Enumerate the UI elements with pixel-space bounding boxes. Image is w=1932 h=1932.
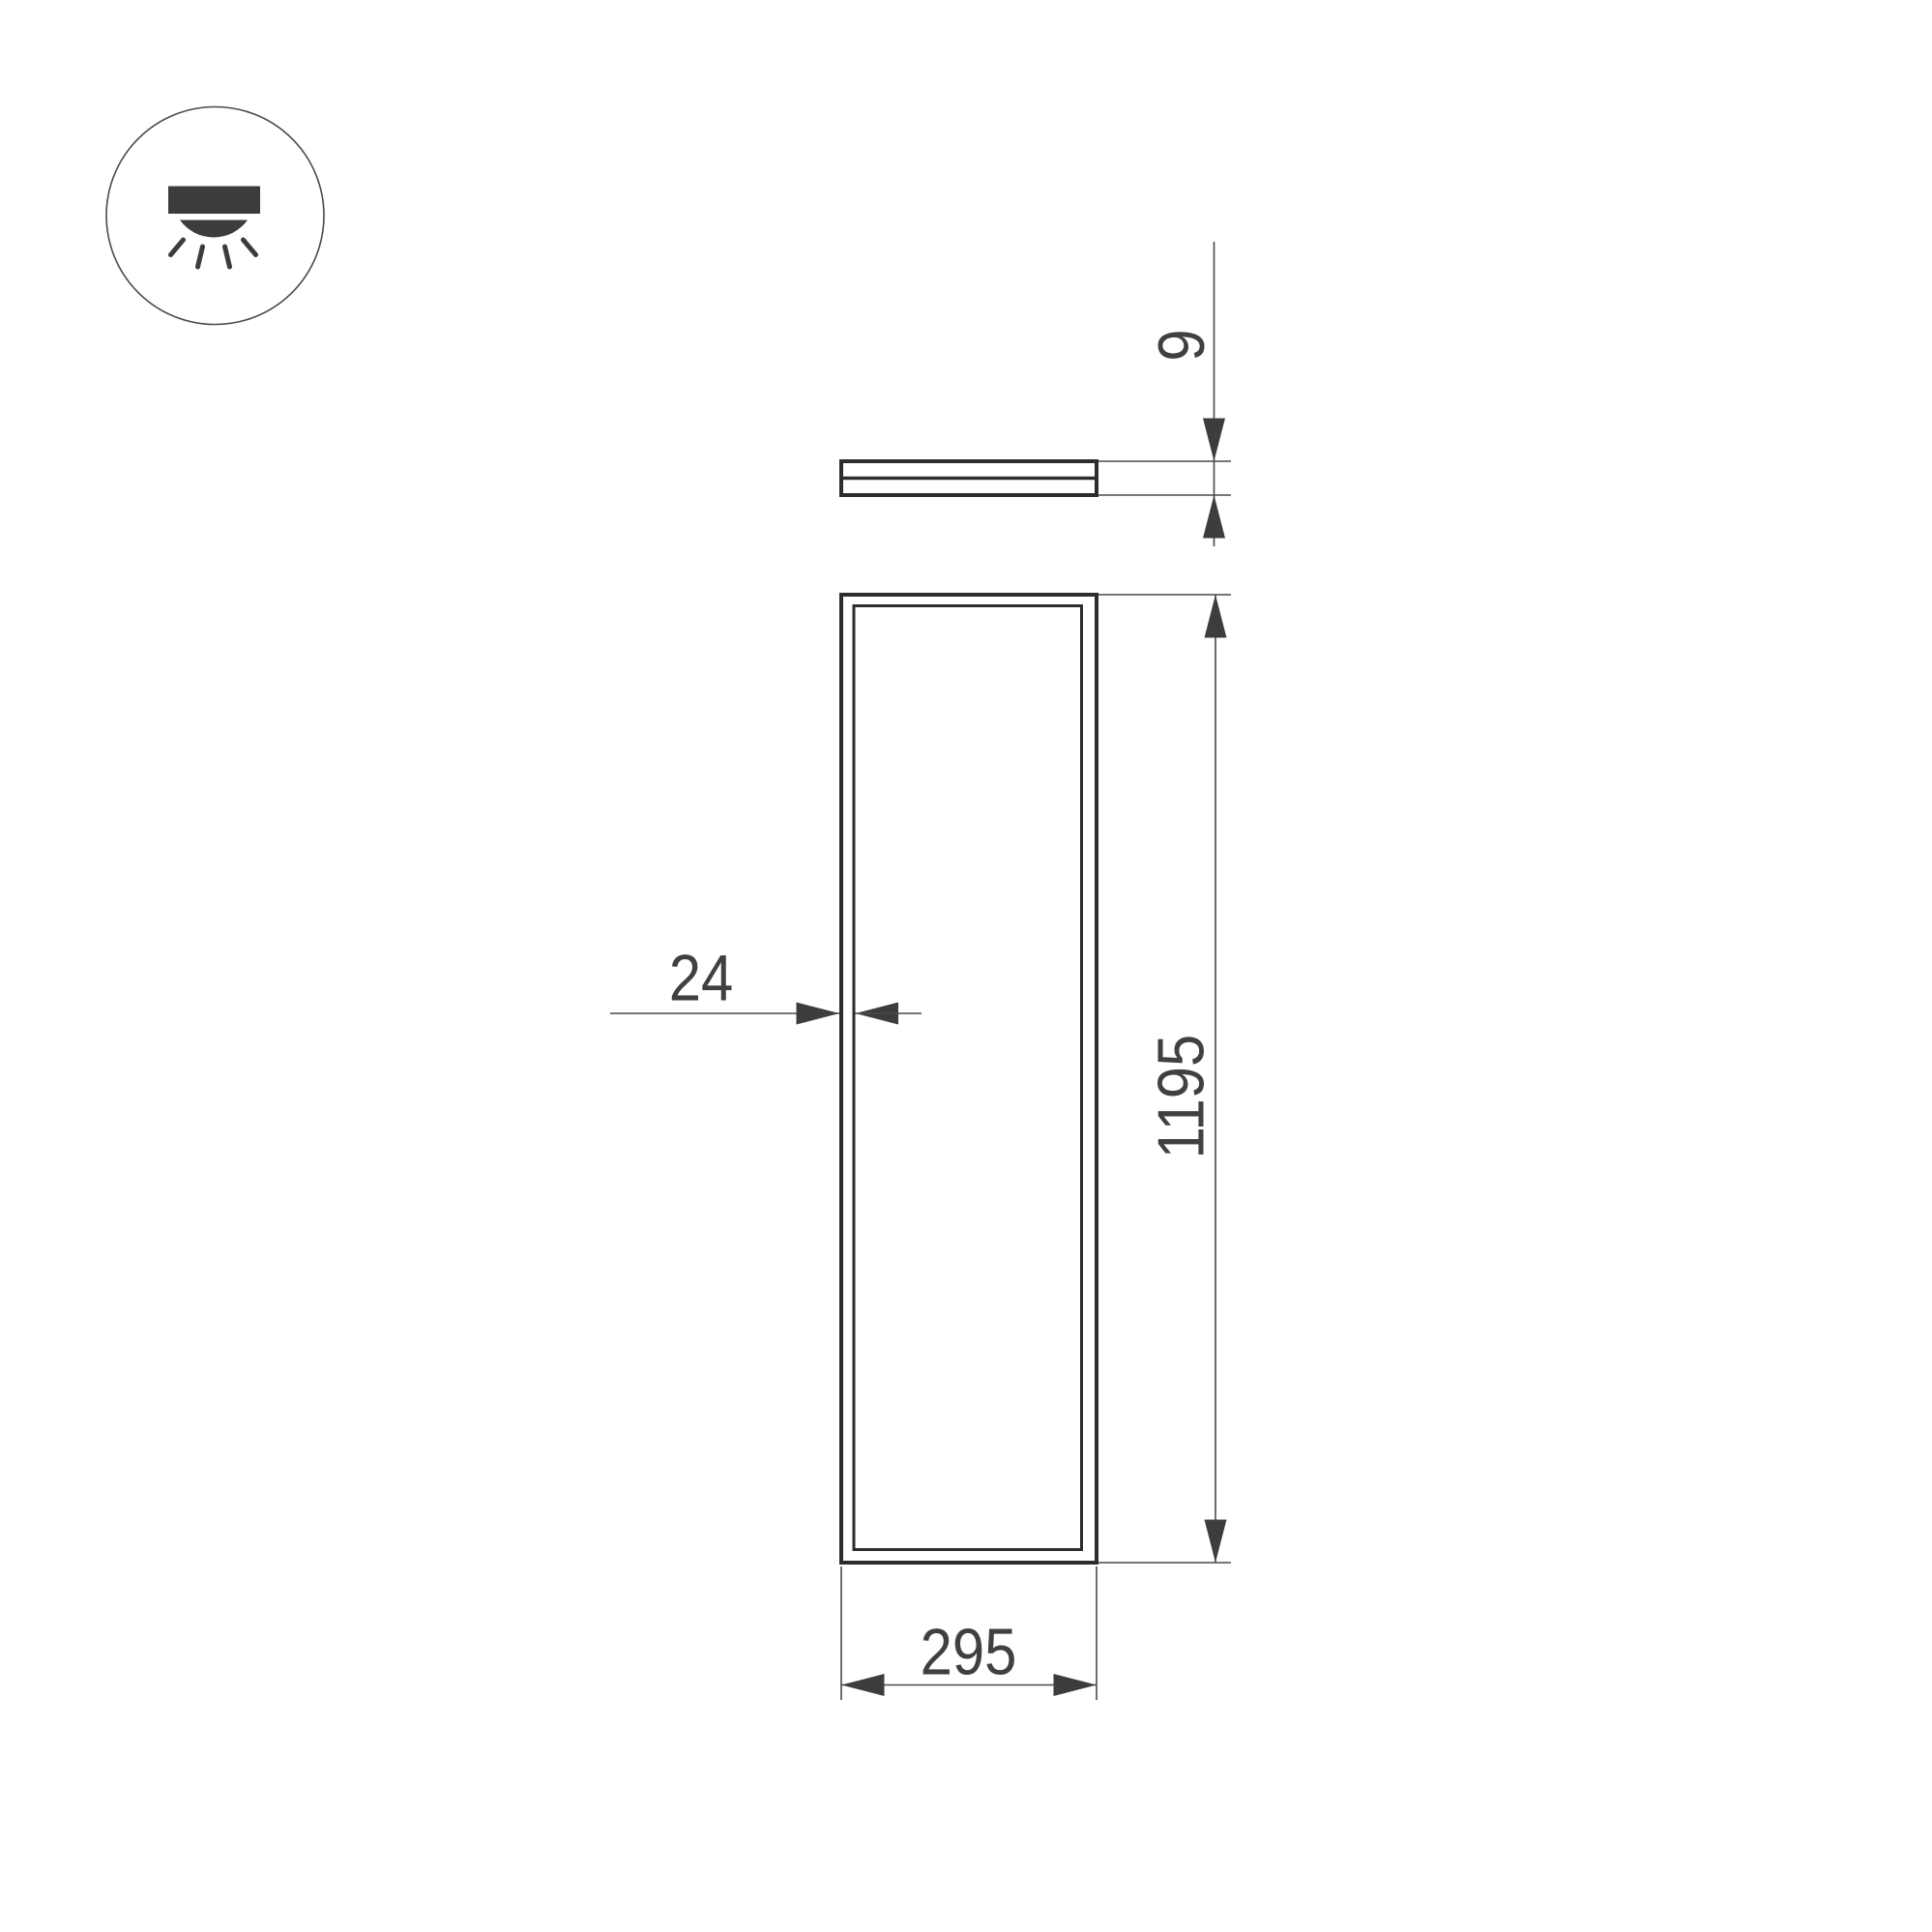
svg-text:9: 9 (1144, 329, 1217, 361)
svg-text:1195: 1195 (1144, 1035, 1217, 1159)
svg-text:24: 24 (669, 941, 734, 1014)
svg-text:295: 295 (921, 1615, 1017, 1688)
